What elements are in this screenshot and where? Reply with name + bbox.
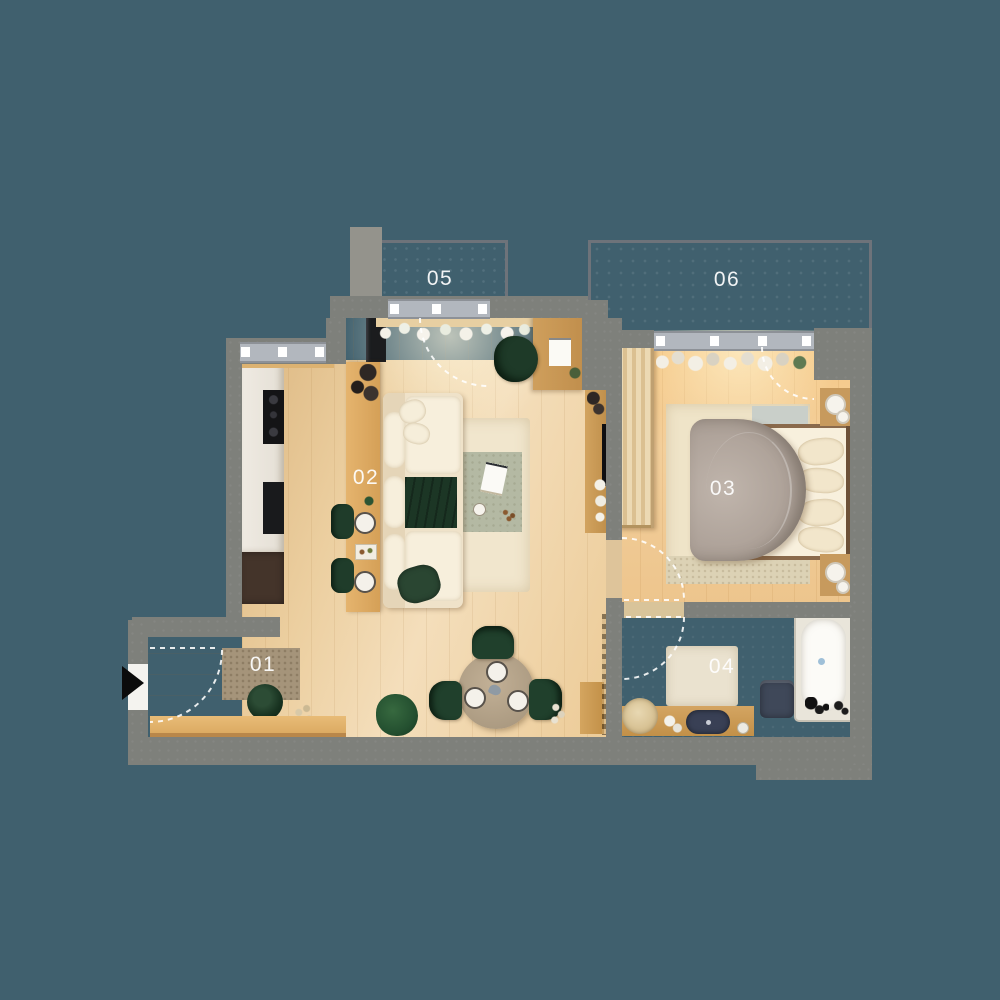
window-mullion: [241, 347, 250, 357]
nightstand-bottom-ball: [836, 580, 850, 594]
wall-divider-living-bedroom: [606, 318, 622, 540]
window-mullion: [315, 347, 324, 357]
window-mullion: [432, 304, 441, 314]
console-candles: [593, 478, 607, 524]
room-label-05: 05: [418, 267, 462, 291]
window-mullion: [390, 304, 399, 314]
desk-paper: [549, 338, 571, 366]
room-label-04: 04: [700, 655, 744, 679]
entry-console-table: [580, 682, 604, 734]
wall-bedroom-bathroom-right: [684, 602, 852, 618]
window-mullion: [278, 347, 287, 357]
window-mullion: [478, 304, 487, 314]
sofa-green-throw: [405, 477, 457, 528]
room-label-02: 02: [344, 466, 388, 490]
nightstand-top-ball: [836, 410, 850, 424]
coffee-cup: [473, 503, 486, 516]
hall-bench: [150, 716, 346, 737]
wall-left: [226, 364, 242, 620]
wardrobe: [618, 346, 654, 528]
wall-right: [850, 328, 872, 765]
console-cups: [587, 391, 605, 415]
sink-faucet-dot: [706, 720, 711, 725]
dining-chair-left: [429, 681, 462, 720]
island-snack-tray: [355, 544, 377, 560]
desk-plant: [568, 366, 582, 380]
island-place-setting-2: [354, 571, 376, 593]
shower-bottles: [833, 700, 849, 716]
bathroom-door-threshold: [624, 602, 684, 618]
bar-stool-2: [331, 558, 354, 593]
closet-rail-clothes: [656, 348, 814, 376]
dining-plate-left: [464, 687, 486, 709]
wall-hall-left-upper: [128, 620, 148, 664]
wall-bottom: [128, 737, 872, 765]
wall-bathroom-left: [606, 618, 622, 738]
entry-door-gap: [128, 664, 148, 710]
kitchen-window: [240, 342, 326, 363]
wall-bedroom-topleft-block: [582, 300, 608, 390]
bedroom-door-threshold: [606, 540, 622, 598]
window-mullion: [802, 336, 811, 346]
towel-stool: [622, 698, 658, 734]
dining-chair-top: [472, 626, 514, 659]
living-balcony-window: [388, 299, 490, 319]
kitchen-tall-cabinet: [238, 552, 284, 604]
wall-bedroom-bathroom-left: [606, 602, 624, 618]
room-label-03: 03: [701, 477, 745, 501]
bar-stool-1: [331, 504, 354, 539]
island-flower: [363, 494, 375, 508]
bathtub-drain: [818, 658, 825, 665]
laundry-basket: [760, 680, 794, 718]
wall-hall-top: [132, 617, 280, 637]
island-place-setting-1: [354, 512, 376, 534]
wall-hall-left-lower: [128, 710, 148, 738]
window-mullion: [710, 336, 719, 346]
pouf: [247, 684, 283, 720]
floor-plan-canvas: 01 02 03 04 05 06: [0, 0, 1000, 1000]
room-label-01: 01: [241, 653, 285, 677]
wall-bottom-right-block: [756, 765, 872, 780]
bedroom-balcony-window: [654, 331, 814, 351]
dining-plate-top: [486, 661, 508, 683]
potted-plant: [376, 694, 418, 736]
window-mullion: [656, 336, 665, 346]
dining-plate-right: [507, 690, 529, 712]
balcony-05-pillar: [350, 227, 382, 303]
desk-chair: [494, 336, 538, 382]
rug-decor-spill: [500, 506, 518, 522]
vanity-glass: [737, 722, 749, 734]
soap-bottles: [662, 714, 684, 734]
coffee-set: [350, 364, 380, 406]
kitchen-sink-unit: [263, 482, 284, 534]
kitchen-cooktop: [263, 390, 284, 444]
room-label-06: 06: [705, 268, 749, 292]
dried-flowers-dining: [547, 699, 569, 727]
wall-top-right-block: [814, 328, 850, 380]
window-mullion: [758, 336, 767, 346]
bathtub-faucet: [805, 697, 829, 714]
